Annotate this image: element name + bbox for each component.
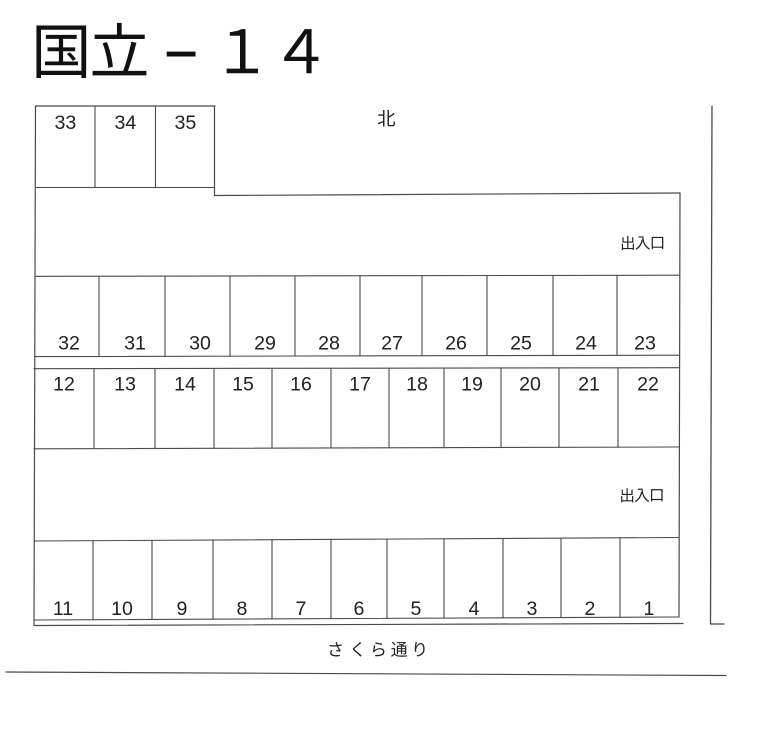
- svg-text:6: 6: [354, 598, 365, 620]
- svg-text:10: 10: [111, 598, 133, 620]
- svg-text:27: 27: [381, 333, 403, 355]
- svg-text:7: 7: [296, 598, 307, 620]
- svg-text:18: 18: [406, 374, 428, 396]
- svg-text:3: 3: [527, 598, 538, 620]
- svg-text:8: 8: [237, 598, 248, 620]
- svg-text:34: 34: [115, 112, 137, 134]
- svg-text:4: 4: [469, 598, 480, 620]
- svg-text:22: 22: [637, 374, 659, 396]
- svg-text:15: 15: [232, 374, 254, 396]
- svg-text:21: 21: [578, 374, 600, 396]
- svg-text:9: 9: [177, 598, 188, 620]
- svg-text:5: 5: [411, 598, 422, 620]
- svg-text:26: 26: [445, 333, 467, 355]
- svg-text:29: 29: [254, 333, 276, 355]
- svg-text:32: 32: [58, 333, 80, 355]
- svg-text:33: 33: [55, 112, 77, 134]
- svg-text:24: 24: [575, 333, 597, 355]
- svg-text:35: 35: [175, 112, 197, 134]
- svg-text:14: 14: [174, 374, 196, 396]
- svg-text:2: 2: [585, 598, 596, 620]
- svg-text:12: 12: [53, 374, 75, 396]
- svg-text:19: 19: [461, 374, 483, 396]
- svg-text:30: 30: [189, 333, 211, 355]
- svg-text:17: 17: [349, 374, 371, 396]
- svg-text:28: 28: [318, 333, 340, 355]
- svg-text:16: 16: [290, 374, 312, 396]
- svg-text:20: 20: [519, 374, 541, 396]
- svg-text:25: 25: [510, 333, 532, 355]
- svg-text:23: 23: [634, 333, 656, 355]
- svg-text:13: 13: [114, 374, 136, 396]
- svg-text:1: 1: [644, 598, 655, 620]
- svg-text:11: 11: [53, 598, 73, 620]
- svg-text:31: 31: [124, 333, 146, 355]
